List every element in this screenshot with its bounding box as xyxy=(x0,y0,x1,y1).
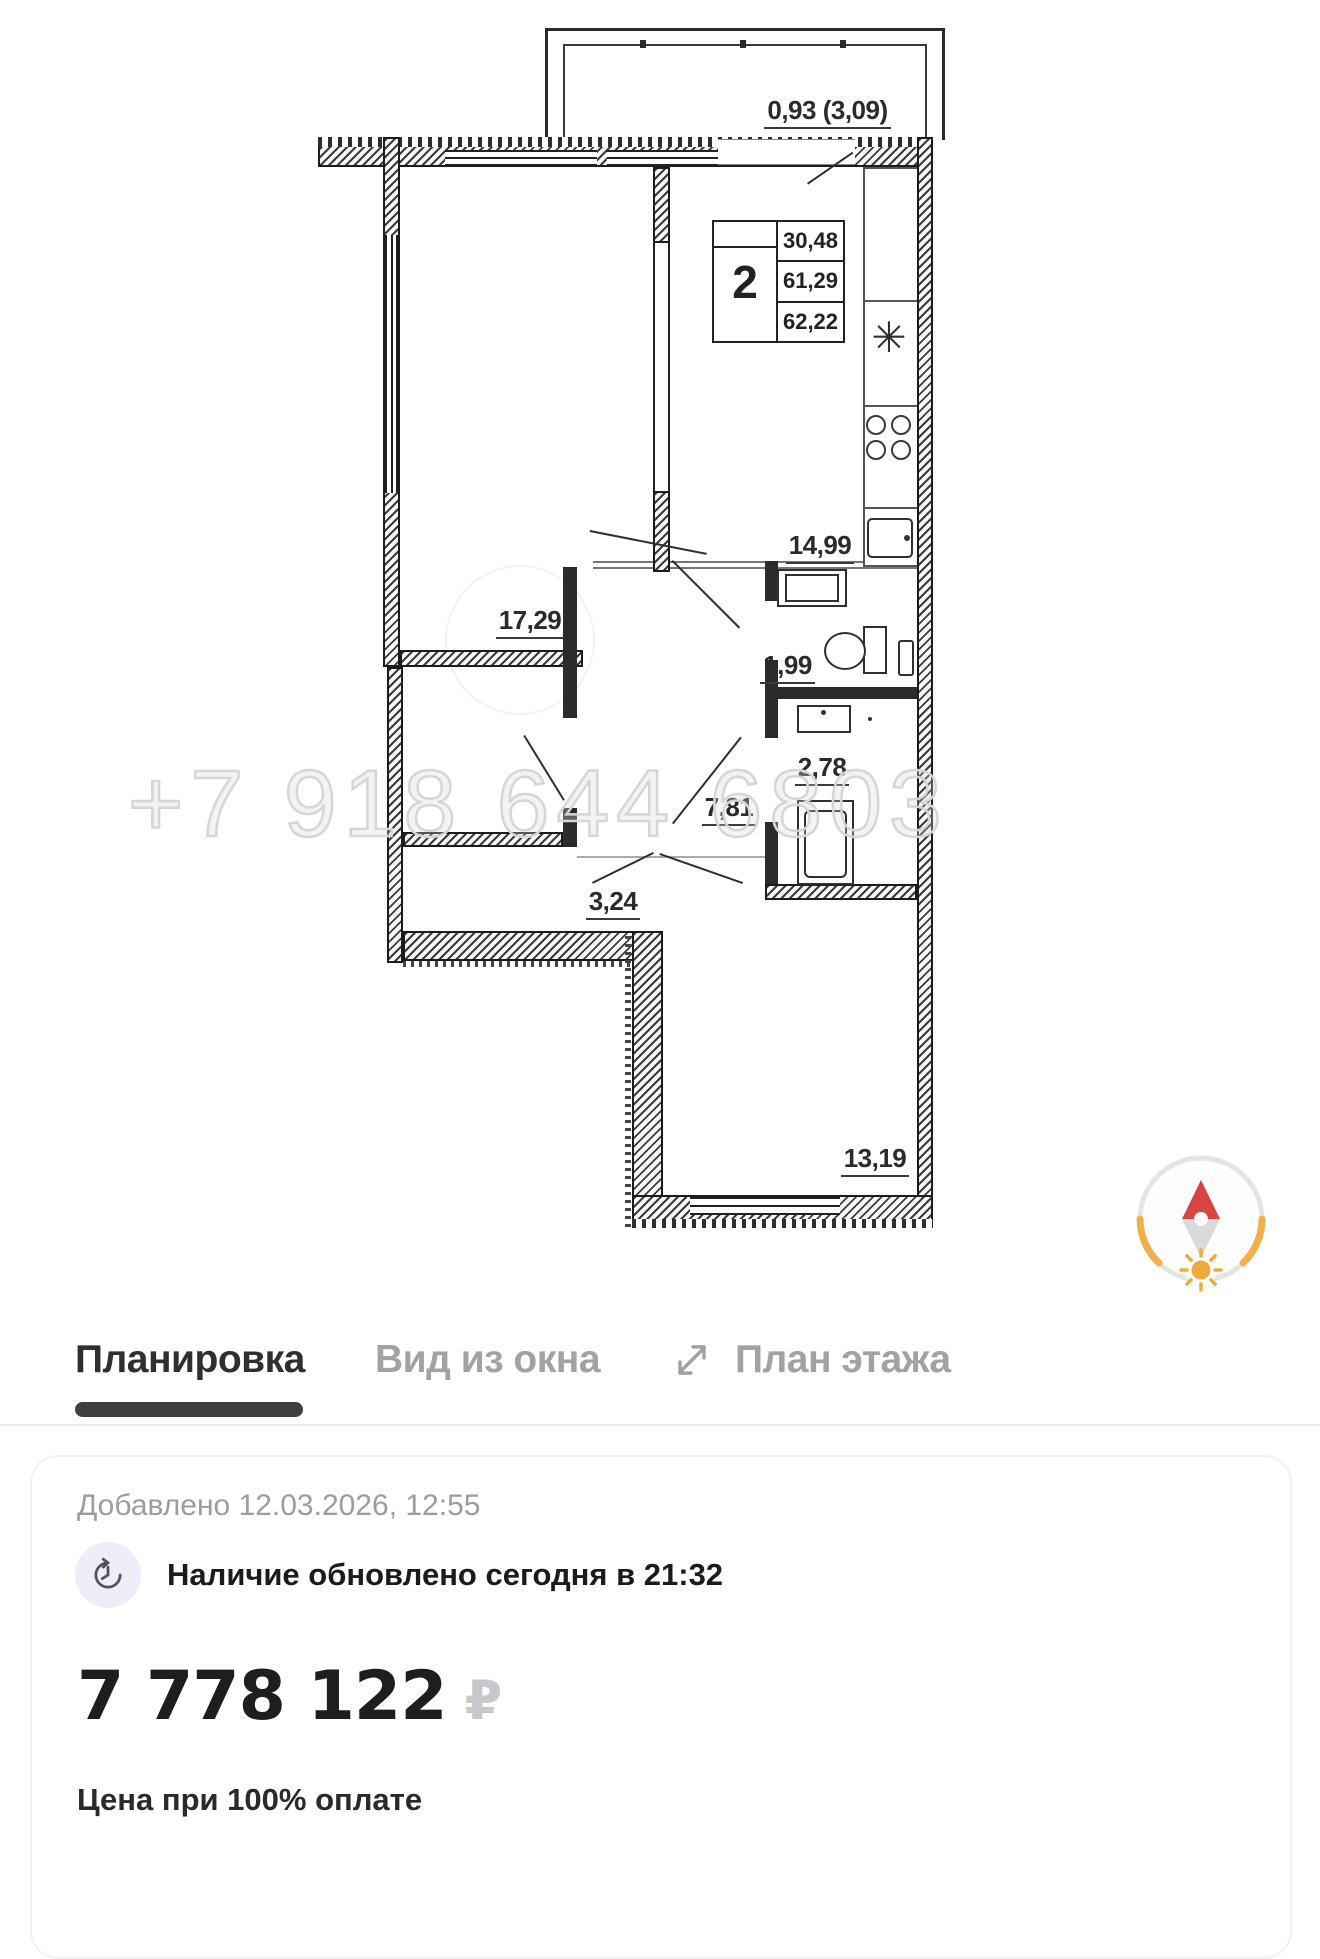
wall-right xyxy=(917,137,933,1227)
added-date-text: Добавлено 12.03.2026, 12:55 xyxy=(77,1489,480,1523)
wall-wc-bath-divider xyxy=(778,687,917,699)
stove-burner xyxy=(891,440,911,460)
wall-bath-bottom xyxy=(765,884,917,900)
sun-icon xyxy=(1192,1261,1211,1280)
corridor-area-label: 3,24 xyxy=(563,886,663,917)
tab-planirovka[interactable]: Планировка xyxy=(75,1338,305,1382)
listing-info-card: Добавлено 12.03.2026, 12:55 Наличие обно… xyxy=(30,1455,1292,1959)
ruble-sign: ₽ xyxy=(465,1669,503,1732)
kitchen-sink-faucet xyxy=(904,535,910,541)
living-room-area-label: 17,29 xyxy=(465,605,595,636)
window-living-room xyxy=(445,150,597,166)
balcony-tick xyxy=(740,40,746,48)
info-area-3: 62,22 xyxy=(778,303,843,341)
stove-burner xyxy=(866,440,886,460)
living-room-door-leaf xyxy=(590,530,707,555)
counter-divider xyxy=(863,300,917,302)
partition-kitchen-mid xyxy=(653,243,670,491)
counter-divider xyxy=(863,507,917,509)
tab-plan-etazha[interactable]: План этажа xyxy=(735,1338,951,1382)
wc-sink xyxy=(898,640,914,676)
stove-burner xyxy=(891,415,911,435)
price-value: 7 778 122 xyxy=(77,1657,447,1736)
info-area-1: 30,48 xyxy=(778,222,843,262)
active-tab-underline xyxy=(75,1402,303,1417)
hob-symbol-icon: ✳ xyxy=(861,310,917,366)
window-kitchen xyxy=(607,150,718,166)
partition-kitchen-top xyxy=(653,167,670,243)
tabs-divider xyxy=(0,1424,1320,1426)
compass-icon xyxy=(1106,1132,1296,1322)
price-note: Цена при 100% оплате xyxy=(77,1782,422,1818)
window-living-room-side xyxy=(385,235,398,493)
expand-arrows-icon[interactable] xyxy=(668,1336,716,1384)
wc-area-label: 1,99 xyxy=(740,650,835,681)
kitchen-hall-boundary-line2 xyxy=(593,567,917,569)
price-row: 7 778 122 ₽ xyxy=(77,1657,502,1736)
balcony-tick xyxy=(640,40,646,48)
wall-bottom-insulation xyxy=(632,1219,933,1228)
balcony-door-opening xyxy=(718,139,855,165)
bedroom-area-label: 13,19 xyxy=(825,1143,925,1174)
wall-bedroom-left xyxy=(632,931,663,1227)
kitchen-area-label: 14,99 xyxy=(760,530,880,561)
wall-corridor-bottom xyxy=(403,931,663,961)
info-area-2: 61,29 xyxy=(778,262,843,302)
wc-door-leaf xyxy=(672,560,741,629)
wall-living-room-bottom xyxy=(400,650,583,667)
bathroom-dot xyxy=(868,717,872,721)
balcony-area-label: 0,93 (3,09) xyxy=(735,95,920,126)
stove-burner xyxy=(866,415,886,435)
wall-corridor-insulation xyxy=(403,961,663,967)
wall-closet-right-upper xyxy=(563,567,577,718)
rooms-count: 2 xyxy=(714,222,778,341)
washing-machine-inner xyxy=(785,574,839,602)
window-bedroom xyxy=(690,1197,840,1215)
toilet-tank xyxy=(863,626,887,674)
partition-kitchen-bottom xyxy=(653,491,670,572)
counter-divider xyxy=(863,405,917,407)
bathroom-sink-faucet xyxy=(821,710,826,715)
tab-vid-iz-okna[interactable]: Вид из окна xyxy=(375,1338,600,1382)
availability-text: Наличие обновлено сегодня в 21:32 xyxy=(167,1557,723,1593)
floor-plan-image[interactable]: 0,93 (3,09) ✳ 2 30,48 61,2 xyxy=(310,10,970,1310)
clock-refresh-icon xyxy=(75,1542,141,1608)
phone-watermark: +7 918 644 6803 xyxy=(128,750,1208,859)
apartment-info-box: 2 30,48 61,29 62,22 xyxy=(712,220,845,343)
wall-bedroom-left-insulation xyxy=(625,931,631,1227)
balcony-tick xyxy=(840,40,846,48)
